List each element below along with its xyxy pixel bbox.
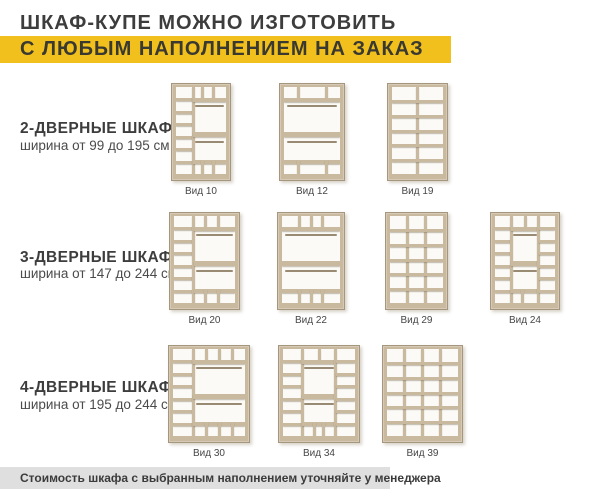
mid-shelf — [193, 132, 226, 137]
shelf — [176, 148, 193, 151]
shelf — [392, 144, 443, 147]
wardrobe-interior — [282, 216, 340, 303]
wardrobe-diagram — [387, 83, 448, 181]
top-shelf — [194, 227, 235, 231]
top-shelf — [302, 360, 335, 364]
shelf — [174, 227, 194, 230]
top-divider — [218, 349, 221, 360]
top-divider — [212, 87, 215, 98]
bottom-divider — [298, 289, 301, 303]
shelf — [539, 252, 555, 255]
top-divider — [205, 349, 208, 360]
shelf — [387, 362, 458, 365]
shelf — [176, 98, 193, 101]
shelf — [390, 229, 443, 232]
shelf — [283, 423, 302, 426]
shelf — [539, 290, 555, 293]
mid-shelf — [511, 261, 539, 266]
shelf — [336, 410, 355, 413]
shelf — [387, 406, 458, 409]
shelf — [173, 423, 193, 426]
top-divider — [524, 216, 527, 227]
hanging-rod — [287, 141, 336, 143]
shelf — [173, 398, 193, 401]
wardrobe-interior — [174, 216, 235, 303]
bottom-divider — [201, 160, 204, 174]
bottom-divider — [297, 160, 300, 174]
top-shelf — [511, 227, 539, 231]
mid-shelf — [193, 394, 245, 399]
wardrobe-interior — [283, 349, 355, 436]
hanging-rod — [196, 234, 233, 236]
footer-note: Стоимость шкафа с выбранным наполнением … — [0, 467, 390, 489]
wardrobe-label: Вид 10 — [156, 186, 246, 197]
shelf — [539, 265, 555, 268]
shelf — [176, 123, 193, 126]
wardrobe-diagram — [278, 345, 360, 443]
bottom-divider — [310, 289, 313, 303]
bottom-divider — [321, 289, 324, 303]
bottom-shelf — [284, 160, 340, 164]
wardrobe-label: Вид 19 — [372, 186, 463, 197]
mid-shelf — [284, 132, 340, 137]
hanging-rod — [287, 105, 336, 107]
shelf — [174, 290, 194, 293]
wardrobe-diagram — [382, 345, 463, 443]
mid-shelf — [302, 394, 335, 399]
mid-shelf — [282, 261, 340, 266]
shelf — [336, 360, 355, 363]
top-divider — [204, 216, 207, 227]
wardrobe-diagram — [490, 212, 560, 310]
section-heading-3-door: 3-ДВЕРНЫЕ ШКАФЫ — [20, 249, 188, 267]
shelf — [392, 115, 443, 118]
shelf — [390, 273, 443, 276]
wardrobe-interior — [173, 349, 245, 436]
shelf — [174, 252, 194, 255]
top-divider — [325, 87, 328, 98]
shelf — [283, 398, 302, 401]
shelf — [174, 240, 194, 243]
section-heading-4-door: 4-ДВЕРНЫЕ ШКАФЫ — [20, 379, 188, 397]
wardrobe-diagram — [277, 212, 345, 310]
top-shelf — [284, 98, 340, 102]
shelf — [392, 159, 443, 162]
shelf — [176, 136, 193, 139]
wardrobe-diagram — [279, 83, 345, 181]
section-subheading-3-door: ширина от 147 до 244 см — [20, 266, 177, 281]
wardrobe-diagram — [171, 83, 231, 181]
shelf — [283, 373, 302, 376]
shelf — [283, 410, 302, 413]
shelf — [283, 385, 302, 388]
shelf — [392, 100, 443, 103]
hanging-rod — [304, 403, 333, 405]
wardrobe-label: Вид 29 — [370, 315, 463, 326]
wardrobe-diagram — [168, 345, 250, 443]
top-divider — [321, 216, 324, 227]
wardrobe-label: Вид 20 — [154, 315, 255, 326]
top-shelf — [282, 227, 340, 231]
wardrobe-interior — [392, 87, 443, 174]
shelf — [336, 373, 355, 376]
wardrobe-label: Вид 30 — [153, 448, 265, 459]
bottom-shelf — [302, 422, 335, 426]
bottom-divider — [218, 422, 221, 436]
wardrobe-label: Вид 34 — [263, 448, 375, 459]
shelf — [387, 392, 458, 395]
shelf — [539, 240, 555, 243]
section-subheading-4-door: ширина от 195 до 244 см — [20, 397, 177, 412]
wardrobe-label: Вид 22 — [262, 315, 360, 326]
bottom-divider — [231, 422, 234, 436]
shelf — [390, 244, 443, 247]
bottom-divider — [204, 289, 207, 303]
shelf — [392, 130, 443, 133]
wardrobe-interior — [284, 87, 340, 174]
shelf — [387, 421, 458, 424]
top-divider — [310, 216, 313, 227]
shelf — [390, 288, 443, 291]
hanging-rod — [513, 270, 537, 272]
section-subheading-2-door: ширина от 99 до 195 см — [20, 138, 170, 153]
hanging-rod — [196, 367, 242, 369]
shelf — [336, 398, 355, 401]
bottom-shelf — [511, 289, 539, 293]
shelf — [176, 161, 193, 164]
bottom-divider — [322, 422, 325, 436]
bottom-divider — [217, 289, 220, 303]
top-divider — [297, 87, 300, 98]
bottom-divider — [205, 422, 208, 436]
wardrobe-interior — [387, 349, 458, 436]
section-heading-2-door: 2-ДВЕРНЫЕ ШКАФЫ — [20, 120, 188, 138]
hanging-rod — [196, 270, 233, 272]
flyer-page: ШКАФ-КУПЕ МОЖНО ИЗГОТОВИТЬ С ЛЮБЫМ НАПОЛ… — [0, 0, 600, 500]
shelf — [173, 373, 193, 376]
bottom-divider — [521, 289, 524, 303]
shelf — [173, 385, 193, 388]
shelf — [539, 277, 555, 280]
shelf — [174, 277, 194, 280]
hanging-rod — [196, 403, 242, 405]
mid-shelf — [194, 261, 235, 266]
wardrobe-interior — [176, 87, 226, 174]
bottom-divider — [313, 422, 316, 436]
bottom-shelf — [194, 289, 235, 293]
shelf — [390, 259, 443, 262]
shelf — [176, 111, 193, 114]
wardrobe-label: Вид 12 — [264, 186, 360, 197]
top-divider — [217, 216, 220, 227]
hanging-rod — [513, 234, 537, 236]
shelf — [387, 377, 458, 380]
bottom-divider — [325, 160, 328, 174]
shelf — [283, 360, 302, 363]
shelf — [336, 385, 355, 388]
top-divider — [318, 349, 321, 360]
wardrobe-interior — [495, 216, 555, 303]
bottom-shelf — [193, 160, 226, 164]
hanging-rod — [285, 234, 336, 236]
top-divider — [298, 216, 301, 227]
bottom-divider — [212, 160, 215, 174]
wardrobe-label: Вид 24 — [475, 315, 575, 326]
top-shelf — [193, 98, 226, 102]
top-divider — [201, 87, 204, 98]
wardrobe-label: Вид 39 — [367, 448, 478, 459]
shelf — [173, 360, 193, 363]
wardrobe-interior — [390, 216, 443, 303]
shelf — [173, 410, 193, 413]
hanging-rod — [285, 270, 336, 272]
hanging-rod — [195, 105, 224, 107]
wardrobe-diagram — [385, 212, 448, 310]
shelf — [336, 423, 355, 426]
shelf — [539, 227, 555, 230]
highlight-banner: С ЛЮБЫМ НАПОЛНЕНИЕМ НА ЗАКАЗ — [0, 36, 451, 63]
wardrobe-diagram — [169, 212, 240, 310]
page-title: ШКАФ-КУПЕ МОЖНО ИЗГОТОВИТЬ — [20, 12, 396, 35]
top-shelf — [193, 360, 245, 364]
top-divider — [231, 349, 234, 360]
hanging-rod — [304, 367, 333, 369]
shelf — [174, 265, 194, 268]
hanging-rod — [195, 141, 224, 143]
